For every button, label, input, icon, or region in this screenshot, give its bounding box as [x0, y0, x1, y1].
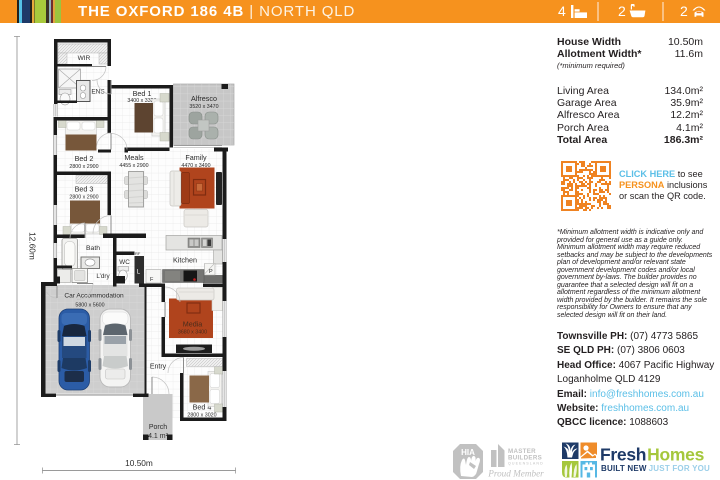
- svg-text:4.1 m²: 4.1 m²: [148, 433, 169, 440]
- svg-text:Bath: Bath: [86, 245, 100, 252]
- svg-text:L’dry: L’dry: [96, 273, 110, 280]
- svg-text:WC: WC: [119, 259, 130, 266]
- svg-text:Meals: Meals: [124, 153, 144, 162]
- svg-text:Media: Media: [183, 320, 203, 329]
- svg-text:Family: Family: [185, 153, 207, 162]
- svg-text:Car Accommodation: Car Accommodation: [64, 293, 124, 300]
- svg-text:Bed 1: Bed 1: [133, 89, 152, 98]
- svg-text:4455 x 2900: 4455 x 2900: [119, 163, 148, 169]
- svg-text:BUILT NEWJUST FOR YOU: BUILT NEWJUST FOR YOU: [601, 464, 710, 473]
- svg-text:Entry: Entry: [150, 364, 167, 371]
- svg-text:3680 x 3400: 3680 x 3400: [178, 330, 207, 336]
- svg-text:2800 x 2900: 2800 x 2900: [69, 195, 98, 201]
- svg-text:Proud Member: Proud Member: [487, 469, 544, 479]
- svg-text:2800 x 2900: 2800 x 2900: [69, 164, 98, 170]
- svg-text:Bed 3: Bed 3: [75, 185, 94, 194]
- svg-text:QUEENSLAND: QUEENSLAND: [508, 462, 544, 466]
- svg-text:10.50m: 10.50m: [125, 458, 153, 468]
- svg-text:HIA: HIA: [461, 448, 475, 457]
- svg-text:BUILDERS: BUILDERS: [508, 455, 542, 462]
- svg-text:Porch: Porch: [149, 424, 167, 431]
- svg-text:WIR: WIR: [78, 55, 91, 62]
- svg-text:Bed 2: Bed 2: [75, 154, 94, 163]
- svg-text:12.60m: 12.60m: [28, 232, 38, 260]
- svg-text:5800 x 5600: 5800 x 5600: [75, 303, 104, 309]
- svg-text:Kitchen: Kitchen: [173, 256, 197, 265]
- svg-text:P: P: [209, 269, 213, 275]
- svg-text:Alfresco: Alfresco: [191, 94, 217, 103]
- svg-text:RF: RF: [135, 251, 141, 256]
- svg-text:3520 x 3470: 3520 x 3470: [189, 104, 218, 110]
- svg-text:FreshHomes: FreshHomes: [600, 445, 705, 465]
